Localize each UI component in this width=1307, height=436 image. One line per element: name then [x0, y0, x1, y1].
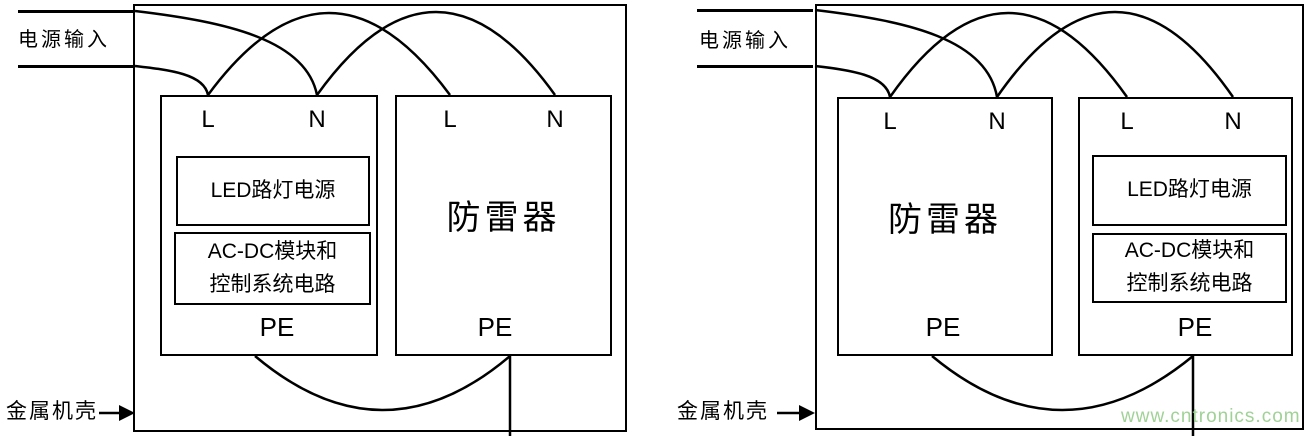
- arrester-label: 防雷器: [395, 202, 612, 236]
- pe-terminal-label: PE: [247, 314, 307, 340]
- terminal-n-label: N: [1218, 110, 1248, 134]
- pe-terminal-label: PE: [913, 314, 973, 340]
- power-input-label: 电源输入: [699, 31, 809, 51]
- terminal-n-label: N: [982, 110, 1012, 134]
- acdc-module-label-line1: AC-DC模块和: [1125, 235, 1255, 268]
- led-driver-module-label: LED路灯电源: [211, 175, 336, 208]
- terminal-n-label: N: [302, 108, 332, 132]
- acdc-module-label-line2: 控制系统电路: [1127, 268, 1253, 301]
- terminal-l-label: L: [1112, 110, 1142, 134]
- terminal-n-label: N: [540, 108, 570, 132]
- pe-terminal-label: PE: [1165, 314, 1225, 340]
- input-line-bottom: [697, 65, 813, 68]
- input-line-top: [697, 9, 813, 12]
- led-driver-module-box: LED路灯电源: [176, 156, 370, 226]
- terminal-l-label: L: [875, 110, 905, 134]
- chassis-label: 金属机壳: [0, 401, 104, 422]
- acdc-control-module-box: AC-DC模块和 控制系统电路: [174, 232, 371, 305]
- led-driver-module-box: LED路灯电源: [1092, 155, 1287, 226]
- wiring-diagram-figure: 电源输入 L N LED路灯电源 AC-DC模块和 控制系统电路 PE L N …: [0, 0, 1307, 436]
- arrester-label: 防雷器: [837, 204, 1053, 238]
- terminal-l-label: L: [193, 108, 223, 132]
- terminal-l-label: L: [435, 108, 465, 132]
- input-line-top: [18, 10, 135, 13]
- acdc-module-label-line2: 控制系统电路: [210, 269, 336, 302]
- chassis-arrow-head-icon: [799, 405, 815, 421]
- pe-terminal-label: PE: [465, 314, 525, 340]
- acdc-control-module-box: AC-DC模块和 控制系统电路: [1092, 233, 1287, 303]
- chassis-label: 金属机壳: [671, 401, 775, 422]
- panel-arrester-right: 电源输入 L N LED路灯电源 AC-DC模块和 控制系统电路 PE L N …: [0, 0, 660, 436]
- site-watermark: www.cntronics.com: [1121, 406, 1301, 428]
- power-input-label: 电源输入: [18, 30, 128, 50]
- panel-arrester-left: 电源输入 L N 防雷器 PE L N LED路灯电源 AC-DC模块和 控制系…: [647, 0, 1307, 436]
- input-line-bottom: [18, 65, 135, 68]
- acdc-module-label-line1: AC-DC模块和: [208, 236, 338, 269]
- led-driver-module-label: LED路灯电源: [1127, 174, 1252, 207]
